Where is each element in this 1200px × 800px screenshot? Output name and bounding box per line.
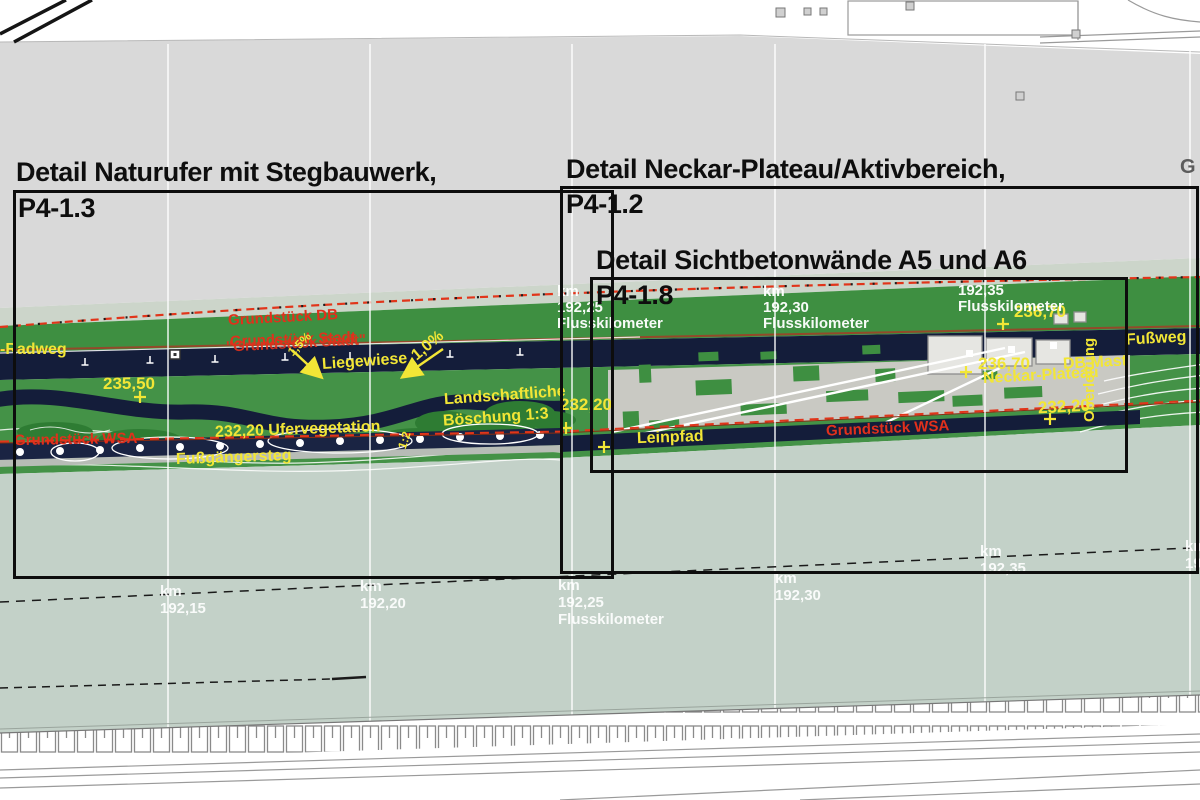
label-radweg: -Radweg (0, 342, 67, 359)
km-prefix: km (763, 284, 869, 300)
edge-clipped-text: G (1180, 157, 1196, 178)
km-value: 192,30 (763, 300, 869, 316)
detail-code-p4-1-8: P4-1.8 (596, 281, 673, 309)
km-prefix: km (775, 570, 821, 587)
km-marker-water-edge: km 19 (1185, 538, 1200, 572)
label-elevation-235-50: 235,50 (103, 375, 155, 393)
km-marker-top-192-35: 192,35 Flusskilometer (958, 283, 1064, 315)
km-marker-water-192-30: km 192,30 (775, 570, 821, 604)
km-marker-top-192-30: km 192,30 Flusskilometer (763, 284, 869, 332)
km-value: 192,20 (360, 595, 406, 612)
km-marker-water-192-35: km 192,35 (980, 543, 1026, 577)
km-prefix: km (360, 578, 406, 595)
label-elevation-232-20-mid: 232,20 (560, 396, 612, 414)
detail-code-p4-1-2: P4-1.2 (566, 190, 643, 218)
km-prefix: km (160, 583, 206, 600)
km-prefix: km (1185, 538, 1200, 555)
detail-title-naturufer: Detail Naturufer mit Stegbauwerk, (16, 158, 436, 186)
km-unit: Flusskilometer (958, 299, 1064, 315)
km-value: 192,15 (160, 600, 206, 617)
detail-title-plateau: Detail Neckar-Plateau/Aktivbereich, (566, 155, 1005, 183)
label-leinpfad: Leinpfad (637, 429, 704, 448)
km-marker-water-192-20: km 192,20 (360, 578, 406, 612)
detail-title-sichtbeton: Detail Sichtbetonwände A5 und A6 (596, 246, 1027, 274)
label-grundstueck-wsa-left: Grundstück WSA (14, 431, 138, 449)
km-unit: Flusskilometer (557, 316, 663, 332)
label-elevation-232-20-right: 232,20 (1038, 397, 1091, 418)
detail-code-p4-1-3: P4-1.3 (18, 194, 95, 222)
km-marker-water-192-25: km 192,25 Flusskilometer (558, 577, 664, 628)
km-value: 192,25 (558, 594, 664, 611)
site-plan-view: Detail Naturufer mit Stegbauwerk, P4-1.3… (0, 0, 1200, 800)
km-value: 192,35 (958, 283, 1064, 299)
km-unit: Flusskilometer (558, 611, 664, 628)
km-prefix: km (558, 577, 664, 594)
km-prefix: km (980, 543, 1026, 560)
rail-sign-icon (170, 350, 180, 359)
km-value: 192,30 (775, 587, 821, 604)
label-fussweg: Fußweg (1126, 329, 1187, 349)
km-unit: Flusskilometer (763, 316, 869, 332)
km-marker-water-192-15: km 192,15 (160, 583, 206, 617)
km-value: 19 (1185, 555, 1200, 572)
km-value: 192,35 (980, 560, 1026, 577)
